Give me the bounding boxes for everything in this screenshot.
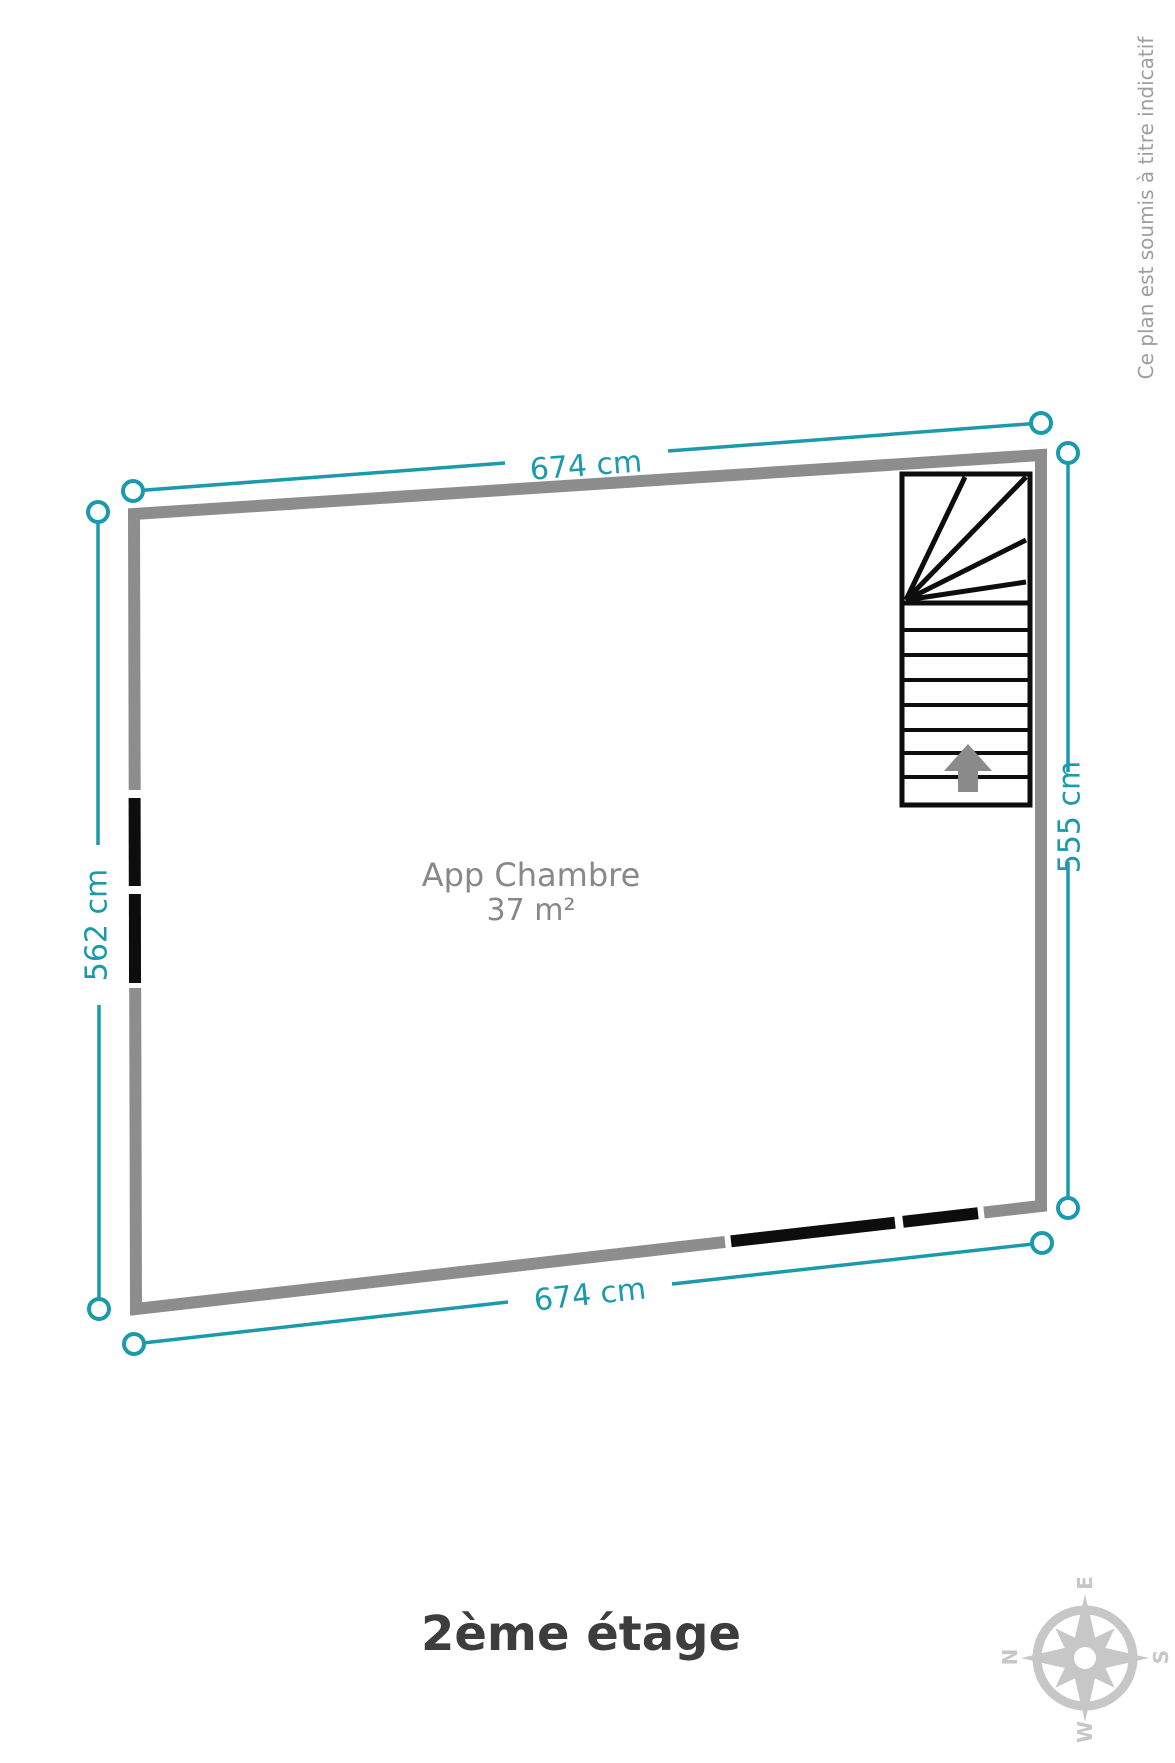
room-area: 37 m² (422, 893, 641, 929)
floor-plan-page: 674 cm 674 cm 562 cm 555 cm App Chambre … (0, 0, 1175, 1763)
room-label: App Chambre 37 m² (422, 857, 641, 929)
compass-letter-e: E (1073, 1576, 1097, 1590)
dimension-label-right: 555 cm (1053, 761, 1088, 874)
disclaimer-text: Ce plan est soumis à titre indicatif (1134, 37, 1158, 380)
staircase (902, 474, 1030, 805)
floor-title: 2ème étage (421, 1606, 741, 1662)
compass-letter-n: N (998, 1649, 1022, 1666)
compass-center (1074, 1647, 1096, 1669)
compass-letter-w: W (1073, 1721, 1097, 1743)
room-name: App Chambre (422, 857, 641, 893)
dimension-label-left: 562 cm (80, 869, 115, 982)
compass-letter-s: S (1149, 1650, 1173, 1664)
bottom-door-leaf (903, 1213, 978, 1222)
compass-rose-icon (1021, 1594, 1149, 1722)
